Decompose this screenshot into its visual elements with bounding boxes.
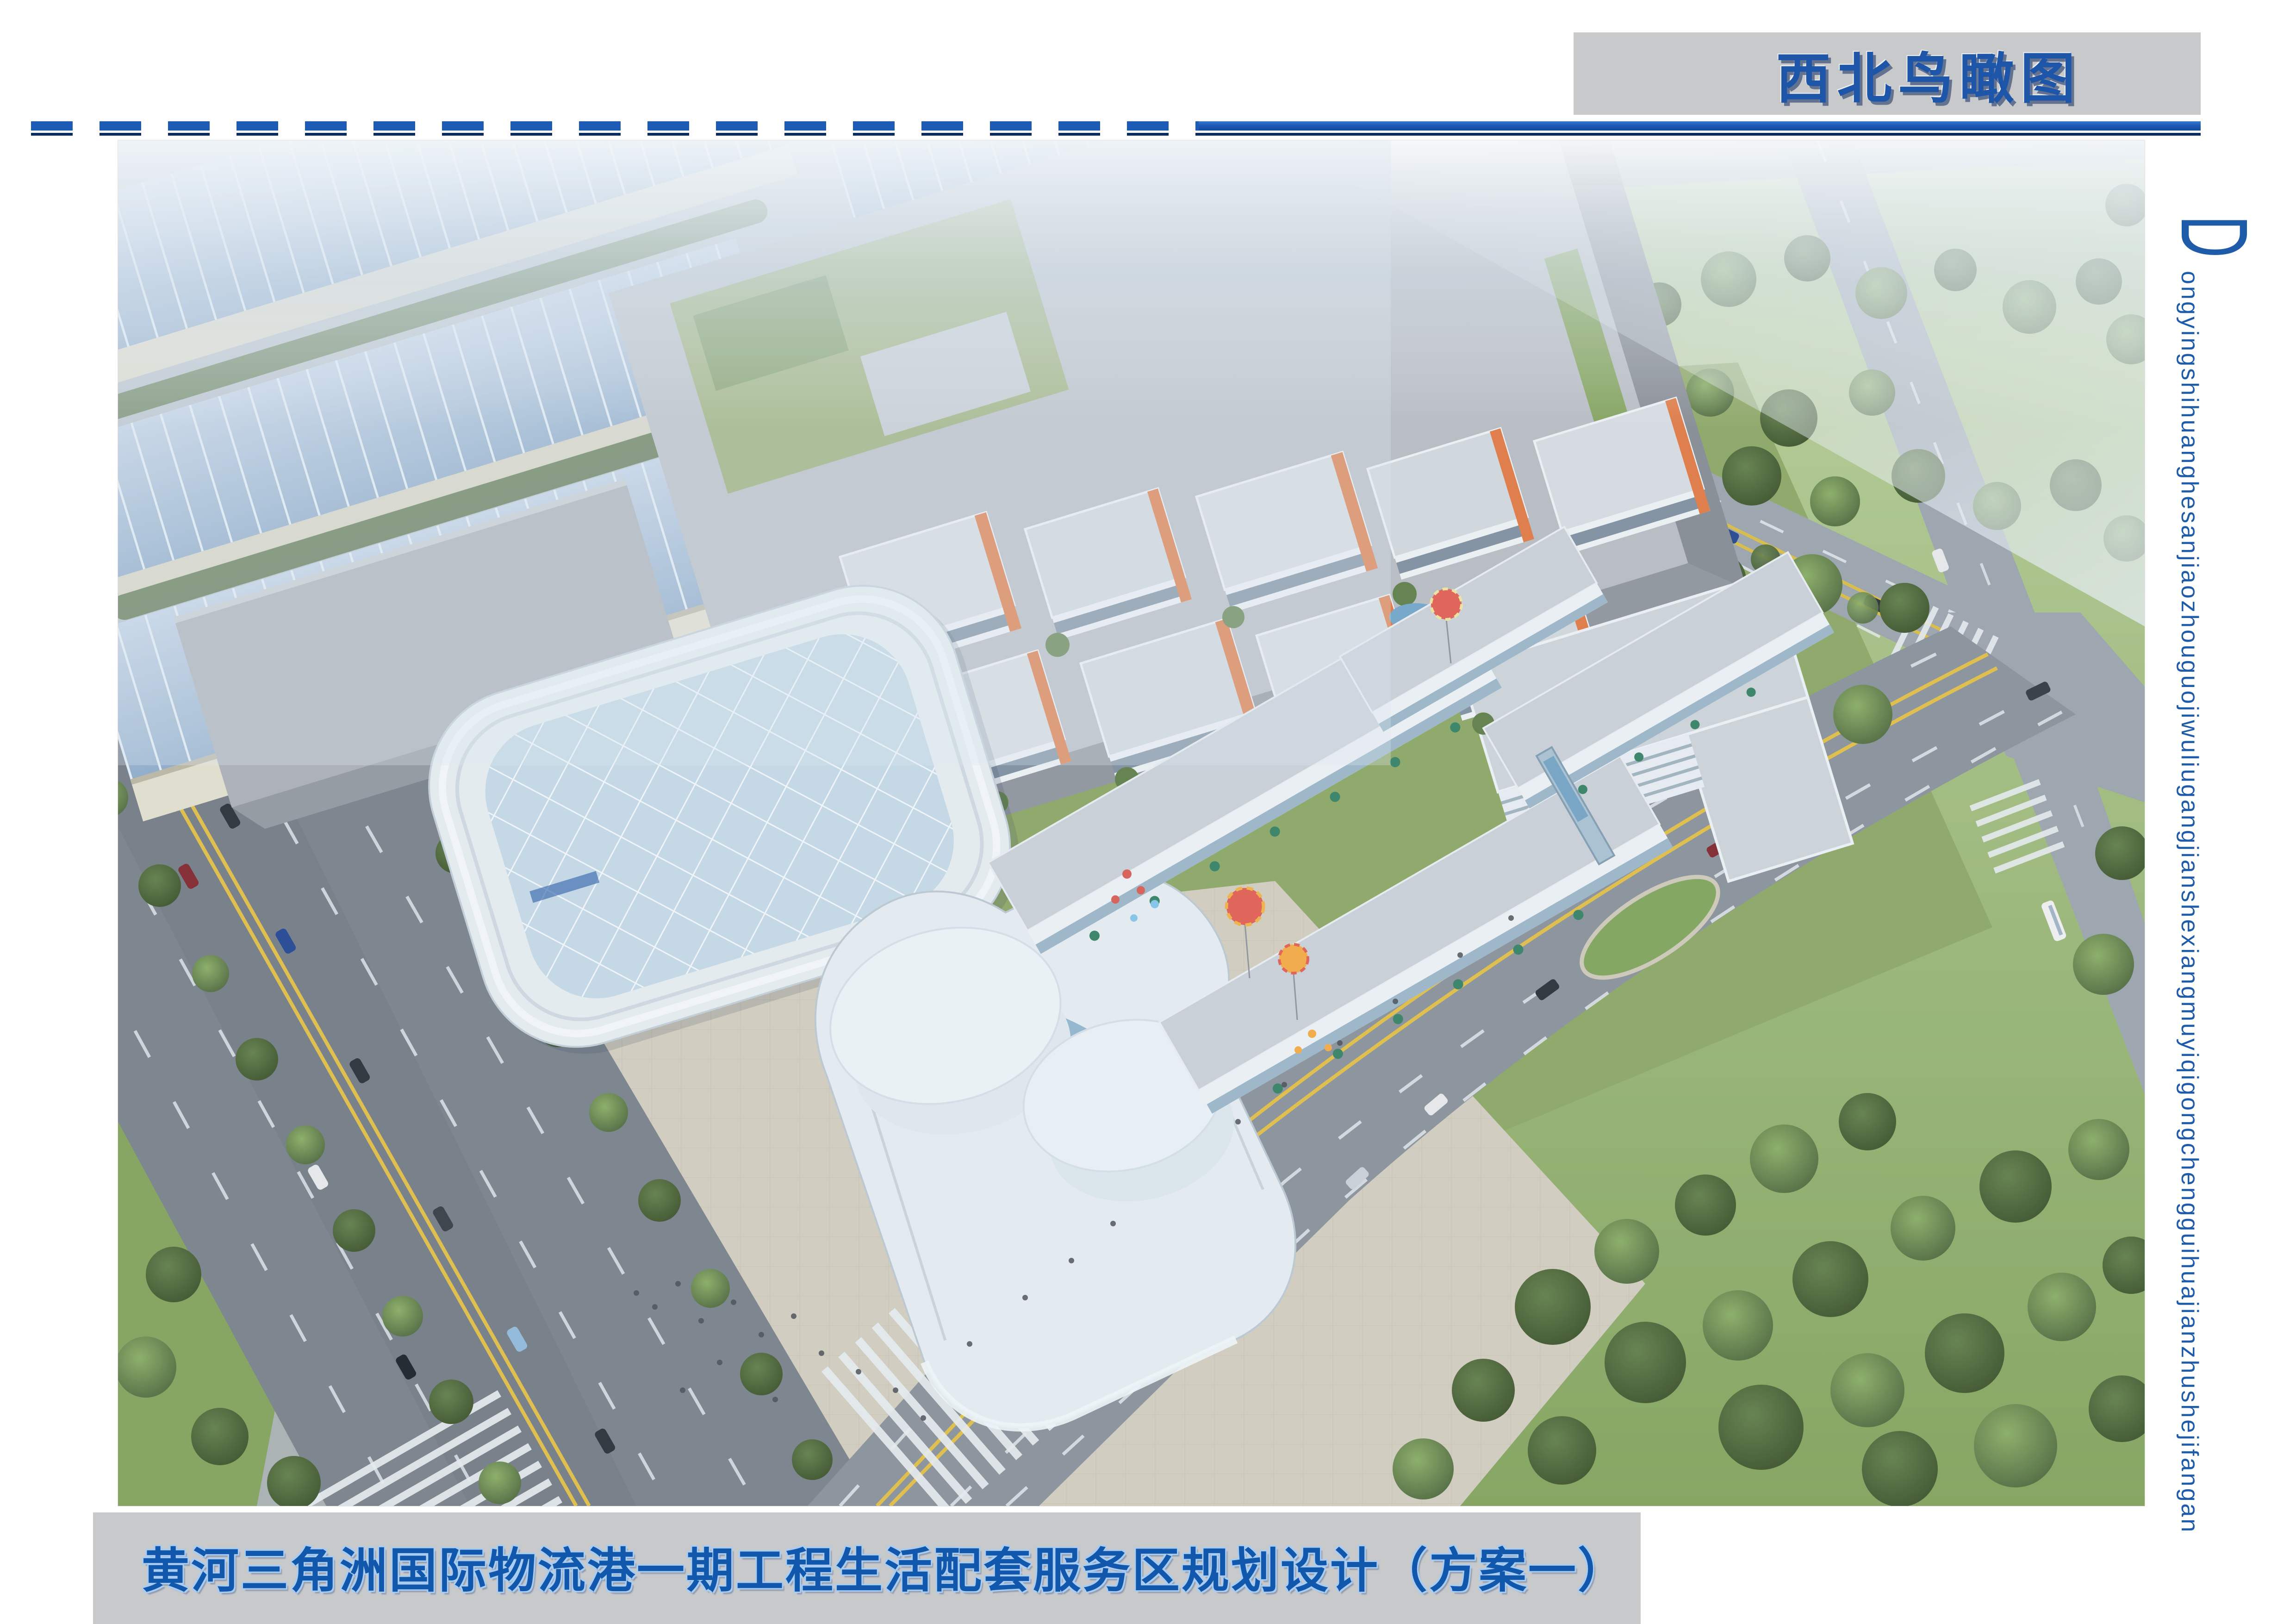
view-title: 西北鸟瞰图 xyxy=(1776,34,2081,113)
aerial-rendering xyxy=(118,140,2145,1506)
project-pinyin-label: Dongyingshihuanghesanjiaozhouguojiwuliug… xyxy=(2172,202,2269,1582)
header-solid-line xyxy=(1199,121,2201,136)
project-title: 黄河三角洲国际物流港一期工程生活配套服务区规划设计（方案一） xyxy=(142,1532,1627,1601)
project-title-bar: 黄河三角洲国际物流港一期工程生活配套服务区规划设计（方案一） xyxy=(93,1512,1641,1624)
view-title-box: 西北鸟瞰图 xyxy=(1574,32,2201,115)
project-pinyin-text: ongyingshihuanghesanjiaozhouguojiwuliuga… xyxy=(2176,271,2203,1534)
project-pinyin-initial: D xyxy=(2159,215,2269,258)
header-dashed-line xyxy=(31,121,1199,136)
presentation-board: 西北鸟瞰图 xyxy=(0,0,2296,1624)
